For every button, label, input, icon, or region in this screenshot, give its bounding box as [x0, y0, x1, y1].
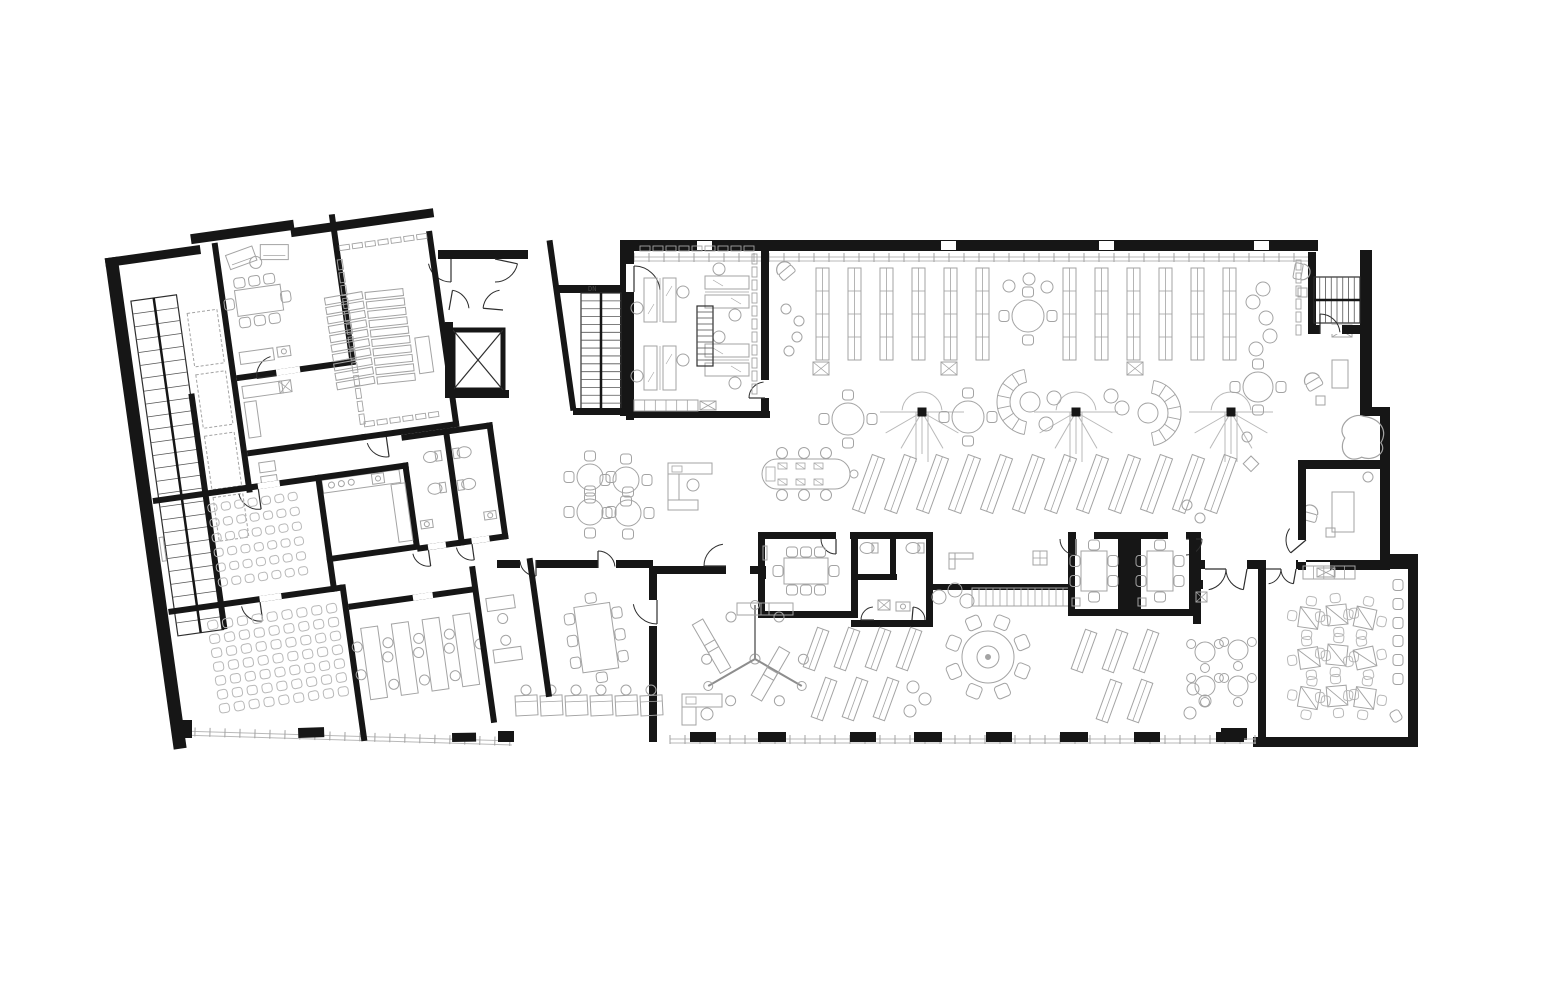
- lounge-chair: [248, 275, 260, 286]
- east-office-stool: [1363, 472, 1373, 482]
- corner-desk: [682, 694, 722, 725]
- restroom-sink: [484, 510, 497, 520]
- pouf: [1047, 391, 1061, 405]
- book-stacks-east: [1063, 268, 1236, 360]
- lecture2-door: [241, 602, 262, 623]
- south-pier: [986, 732, 1012, 742]
- classroom-door-gap: [1266, 560, 1296, 569]
- storage-shelf-a: [259, 461, 276, 473]
- stacked-chair: [1393, 636, 1403, 647]
- pantry-counter-b: [244, 401, 261, 438]
- southwest-pier: [298, 727, 324, 738]
- wing-left-exterior-wall: [105, 257, 187, 750]
- kids-display-shelves: [803, 627, 922, 671]
- study-carrel-row: [515, 685, 663, 716]
- office-counter: [634, 400, 698, 411]
- book-stacks-west: [816, 268, 989, 360]
- top-window-gap: [1099, 241, 1114, 250]
- toilet: [423, 450, 442, 463]
- office-workstation-pair: [631, 346, 689, 390]
- toilet: [427, 482, 446, 495]
- meeting-c-door-gap: [1168, 532, 1186, 539]
- stack-end-panel: [1127, 362, 1143, 375]
- lounge-chair: [233, 277, 245, 288]
- lounge-chair: [269, 313, 281, 324]
- office4-desk-1: [361, 626, 388, 700]
- meeting-b-south-wall: [1068, 609, 1125, 616]
- floor-plan-page: DN: [0, 0, 1545, 1000]
- top-window-gap: [1254, 241, 1269, 250]
- wc-south-wall: [851, 620, 933, 627]
- southwest-pier: [498, 731, 514, 742]
- north-entry-door-right: [495, 259, 517, 282]
- kids-round-table: [1187, 640, 1224, 673]
- east-office-north-wall: [1298, 460, 1388, 469]
- stacked-chair: [1393, 580, 1403, 591]
- reading-armchair: [1302, 370, 1324, 392]
- kitchenette-counter: [239, 348, 274, 365]
- toilet: [860, 543, 878, 554]
- classroom-table: [1341, 674, 1390, 723]
- kids-display-shelves: [1096, 679, 1153, 723]
- office-chair: [444, 643, 455, 654]
- office-east-wall: [761, 240, 769, 380]
- pouf: [794, 316, 804, 326]
- stacked-chair: [1393, 618, 1403, 629]
- small-office-desk-2: [493, 646, 523, 663]
- office4-east-wall: [469, 566, 497, 723]
- meeting-shaft-wall: [1122, 532, 1134, 616]
- wc-partition-v: [890, 532, 896, 578]
- office-printer: [700, 401, 716, 410]
- stacked-chair: [1393, 674, 1403, 685]
- left-wing-rotated-group: [103, 182, 635, 767]
- restroom-sink: [420, 519, 433, 529]
- main-top-wall: [626, 240, 1318, 251]
- curved-display-shelf: [997, 370, 1027, 435]
- stacked-chair: [1393, 655, 1403, 666]
- south-pier: [690, 732, 716, 742]
- pouf: [1263, 329, 1277, 343]
- pantry-south-wall: [247, 434, 367, 457]
- classroom-table: [1313, 631, 1360, 678]
- slanted-display-stacks: [852, 455, 1236, 514]
- small-office-divider: [527, 558, 552, 697]
- office-chair: [388, 679, 399, 690]
- pouf: [904, 705, 916, 717]
- corridor-locker-1: [187, 309, 224, 367]
- office-wall-shelving: [752, 254, 757, 394]
- reading-table: [819, 390, 877, 448]
- classroom-table: [1285, 634, 1334, 683]
- cafe-round-table: [564, 451, 616, 503]
- east-exterior-wall-lower: [1408, 560, 1418, 747]
- meeting-a-door-gap: [836, 532, 850, 539]
- kids-round-table: [1220, 674, 1257, 707]
- lounge-armchair: [773, 258, 796, 281]
- east-stair-west-wall: [1308, 252, 1316, 332]
- entry-door-left: [1205, 569, 1226, 590]
- office-chair: [444, 628, 455, 639]
- pouf: [1003, 280, 1015, 292]
- pouf: [1195, 513, 1205, 523]
- meeting-c-east-wall-b: [1189, 532, 1196, 616]
- southwest-pier: [452, 733, 476, 742]
- lobby-door-right: [483, 290, 503, 310]
- pouf: [1259, 311, 1273, 325]
- toilet: [453, 446, 472, 459]
- wc-door-2: [912, 607, 925, 620]
- entry-double-door-gap: [1205, 560, 1247, 569]
- east-stair: [1314, 277, 1360, 323]
- meeting-b-door-gap: [1076, 532, 1094, 539]
- lounge-chair: [239, 317, 251, 328]
- wc-sink: [896, 602, 910, 611]
- classroom-door-left: [1266, 569, 1281, 584]
- classroom-table: [1313, 591, 1360, 638]
- south-pier: [758, 732, 786, 742]
- classroom-door-right: [1281, 569, 1296, 584]
- small-office-desk-1: [486, 595, 516, 612]
- stacked-chairs: [324, 286, 415, 391]
- office-workstation-pair: [631, 278, 689, 322]
- lounge-door-gap: [276, 366, 301, 375]
- top-window-band: [634, 253, 1316, 262]
- wing-hall-boundary-wall: [547, 240, 577, 411]
- lounge-chair: [254, 315, 266, 326]
- pouf: [1104, 389, 1118, 403]
- lounge-meeting-table: [234, 284, 283, 316]
- restroom-east-wall: [486, 422, 508, 540]
- south-pier: [850, 732, 876, 742]
- diamond-display: [1243, 456, 1259, 472]
- pouf: [781, 304, 791, 314]
- office4-north-wall: [348, 586, 475, 610]
- lecture2-door-gap: [259, 593, 282, 602]
- column-with-radial-floor: [1189, 392, 1273, 462]
- kitchen-sink: [371, 473, 384, 485]
- pouf: [1023, 273, 1035, 285]
- pouf: [1256, 282, 1270, 296]
- small-cross-table: [1033, 551, 1047, 565]
- office-west-door-gap: [626, 264, 634, 292]
- chair-store-table: [415, 336, 434, 374]
- pouf: [1246, 295, 1260, 309]
- wing-mid-wall: [153, 462, 409, 504]
- chair-store-door: [367, 437, 389, 460]
- office4-desk-4: [453, 613, 480, 687]
- floor-plan-drawing: DN: [0, 0, 1545, 1000]
- restroom1-door-gap: [428, 542, 447, 550]
- kitchen-east-wall: [402, 462, 420, 548]
- pouf: [1184, 707, 1196, 719]
- top-window-gap: [941, 241, 956, 250]
- classroom-south-wall: [1253, 737, 1418, 747]
- south-pier: [914, 732, 942, 742]
- stack-end-panel: [813, 362, 829, 375]
- kids-round-table: [1187, 674, 1224, 707]
- curved-display-shelf: [1151, 381, 1181, 446]
- office-chair: [500, 635, 511, 646]
- stair-zone-south-wall: [573, 408, 625, 415]
- lecture2-chair-rows: [207, 603, 349, 714]
- restroom2-door-gap: [471, 536, 490, 544]
- stack-end-panel: [941, 362, 957, 375]
- elevator-shaft: [453, 330, 503, 390]
- office-south-wall: [626, 411, 770, 418]
- stair-down-label: DN: [588, 285, 596, 293]
- kids-display-shelves: [1071, 629, 1159, 673]
- north-connector-wall: [438, 250, 528, 259]
- pouf: [1115, 401, 1129, 415]
- chair-store-shelving-top: [339, 233, 427, 250]
- pouf: [784, 346, 794, 356]
- wing-top-wall-b: [290, 208, 434, 237]
- stacked-chair: [1389, 709, 1403, 724]
- meeting-c-north-wall: [1134, 532, 1196, 539]
- classroom-table: [1314, 673, 1361, 720]
- cafe-round-table: [564, 486, 616, 538]
- meeting-b-table: [1070, 540, 1118, 602]
- pouf: [1041, 281, 1053, 293]
- toilet: [457, 478, 476, 491]
- kitchenette-sink: [277, 346, 291, 358]
- toilet: [906, 543, 924, 554]
- arc-center-table: [1020, 392, 1040, 412]
- pouf: [792, 332, 802, 342]
- wc-partition-h: [851, 574, 897, 580]
- lounge-chair: [263, 273, 275, 284]
- corridor-pier: [1193, 580, 1203, 589]
- pantry-appliance: [279, 380, 293, 394]
- restroom1-door: [413, 550, 431, 568]
- pouf: [919, 693, 931, 705]
- east-exterior-wall-mid: [1380, 414, 1390, 562]
- south-pier: [1216, 732, 1244, 742]
- wc-east-wall: [926, 532, 933, 627]
- hall-west-door-gap: [649, 600, 657, 626]
- wc-console: [878, 600, 890, 610]
- office-chair: [382, 637, 393, 648]
- wing-lounge-bay-wall: [190, 220, 294, 244]
- reading-side-table: [1316, 396, 1325, 405]
- svg-text:DN: DN: [588, 285, 596, 293]
- office-chair: [497, 613, 508, 624]
- south-pier: [1060, 732, 1088, 742]
- corridor-partition-wall: [212, 243, 253, 493]
- office-chair: [382, 651, 393, 662]
- reading-table: [999, 287, 1057, 345]
- counter-stool: [932, 590, 946, 604]
- classroom-west-wall: [1258, 563, 1266, 741]
- wing-top-wall-a: [105, 245, 201, 267]
- kitchen-burner: [338, 480, 345, 487]
- pouf: [907, 681, 919, 693]
- pouf: [1249, 342, 1263, 356]
- hall-north-door-gap: [726, 566, 750, 574]
- reading-table: [939, 388, 997, 446]
- reading-desk: [1332, 360, 1348, 388]
- central-stair: [581, 293, 621, 411]
- kitchen-burner: [328, 482, 335, 489]
- kids-big-round-table: [945, 614, 1031, 700]
- stacked-chair: [1393, 599, 1403, 610]
- pouf: [1187, 683, 1199, 695]
- lounge-sofa-2: [258, 241, 290, 264]
- meeting-a-table: [773, 547, 839, 595]
- office4-desk-2: [391, 622, 418, 696]
- cafe-round-table: [600, 454, 652, 506]
- meeting-a-door: [821, 539, 836, 554]
- office-west-door: [634, 266, 660, 292]
- pantry-counter-a: [242, 381, 283, 398]
- cafe-counter: [972, 588, 1070, 606]
- office4-desk-3: [422, 617, 449, 691]
- kitchen-south-wall: [326, 543, 420, 562]
- classroom-table: [1285, 594, 1334, 643]
- column-with-radial-floor: [1034, 392, 1118, 462]
- lecture1-chair-rows: [207, 492, 308, 587]
- lounge-sofa-1: [225, 246, 258, 271]
- south-pier: [1134, 732, 1160, 742]
- organic-rug: [1342, 415, 1384, 459]
- study-conference-table: [762, 448, 858, 501]
- arc-center-table: [1138, 403, 1158, 423]
- kids-display-shelves: [811, 677, 899, 721]
- corridor-locker-3: [204, 432, 241, 490]
- office-chair: [413, 633, 424, 644]
- east-office-table: [1332, 492, 1354, 532]
- corridor-locker-2: [196, 371, 233, 429]
- south-window-band: [670, 735, 1256, 744]
- reading-table: [1230, 359, 1286, 415]
- office4-door-gap: [413, 592, 434, 601]
- entry-door-right: [1226, 569, 1247, 590]
- office-chair: [419, 674, 430, 685]
- restroom2-door: [456, 544, 474, 562]
- wc-door-1: [861, 607, 874, 620]
- hall-bench: [949, 553, 973, 569]
- cafe-round-table: [602, 487, 654, 539]
- meeting-c-south-wall: [1134, 609, 1196, 616]
- office-chair: [450, 670, 461, 681]
- hall-north-door: [704, 544, 726, 566]
- information-desk: [668, 463, 712, 510]
- kitchen-burner: [348, 479, 355, 486]
- lobby-door-left: [449, 290, 469, 310]
- meeting-c-table: [1136, 540, 1184, 602]
- tilted-meeting-table: [561, 589, 631, 686]
- kids-round-table: [1220, 638, 1257, 671]
- classroom-table: [1284, 673, 1334, 723]
- office-chair: [413, 647, 424, 658]
- top-window-gap: [697, 241, 712, 250]
- column-with-radial-floor: [880, 392, 964, 462]
- chair-store-shelving-bottom: [364, 411, 439, 426]
